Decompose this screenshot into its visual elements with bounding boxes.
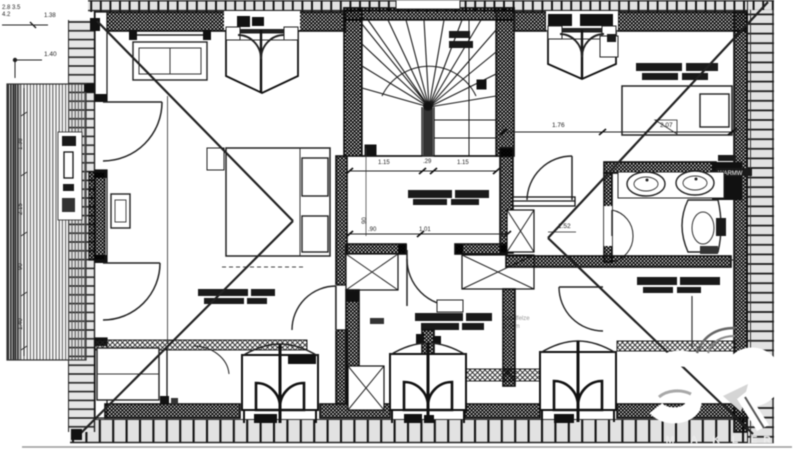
svg-text:90: 90: [362, 217, 368, 224]
svg-text:1.15: 1.15: [378, 160, 390, 166]
svg-text:.90: .90: [368, 227, 377, 233]
svg-text:R: R: [763, 434, 771, 446]
svg-text:K: K: [712, 434, 720, 446]
svg-text:1.76: 1.76: [552, 122, 565, 129]
svg-text:E: E: [750, 434, 757, 446]
svg-text:L: L: [732, 434, 739, 446]
svg-text:1.40: 1.40: [18, 318, 24, 330]
svg-text:A: A: [690, 434, 698, 446]
svg-text:1.38: 1.38: [18, 138, 24, 150]
svg-text:2.07: 2.07: [660, 122, 673, 129]
svg-text:2.15: 2.15: [18, 203, 24, 215]
svg-text:1.01: 1.01: [419, 227, 431, 233]
svg-text:4.2: 4.2: [2, 12, 11, 18]
svg-text:1.38: 1.38: [44, 13, 56, 19]
svg-text:90: 90: [18, 263, 24, 270]
svg-text:M: M: [666, 434, 675, 446]
svg-text:.29: .29: [423, 159, 432, 165]
svg-text:1.40: 1.40: [44, 51, 57, 58]
svg-text:1.15: 1.15: [457, 160, 469, 166]
svg-text:2.8 3.5: 2.8 3.5: [2, 5, 21, 11]
